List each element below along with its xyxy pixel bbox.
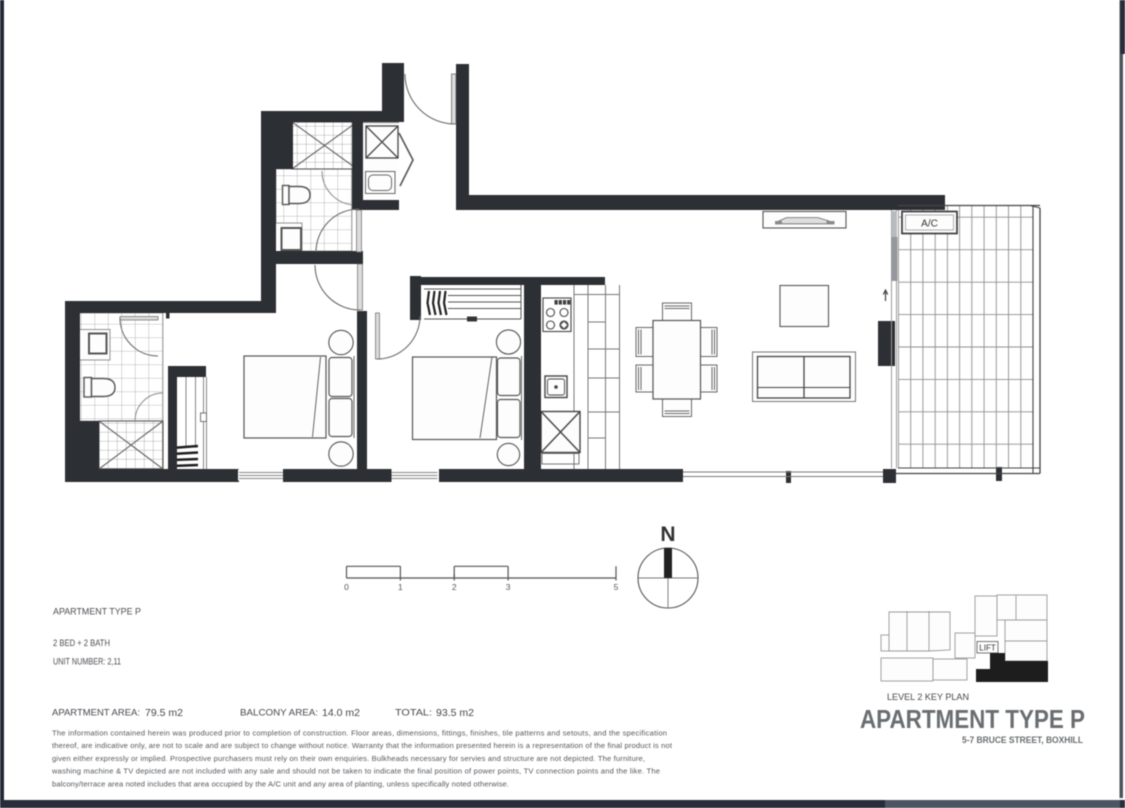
svg-text:5-7 BRUCE STREET, BOXHILL: 5-7 BRUCE STREET, BOXHILL: [962, 735, 1083, 746]
svg-text:APARTMENT TYPE P: APARTMENT TYPE P: [860, 706, 1085, 734]
svg-text:2: 2: [452, 582, 457, 592]
svg-text:A/C: A/C: [921, 219, 938, 230]
svg-text:0: 0: [344, 582, 349, 592]
svg-text:UNIT NUMBER: 2,11: UNIT NUMBER: 2,11: [53, 657, 121, 668]
svg-text:washing machine & TV depicted: washing machine & TV depicted are not in…: [51, 767, 660, 776]
svg-text:The information contained here: The information contained herein was pro…: [52, 729, 667, 738]
svg-text:79.5 m2: 79.5 m2: [145, 707, 183, 719]
svg-text:5: 5: [614, 582, 619, 592]
svg-text:TOTAL:: TOTAL:: [395, 708, 432, 719]
svg-text:balcony/terrace area noted inc: balcony/terrace area noted includes that…: [52, 779, 509, 788]
svg-text:APARTMENT AREA:: APARTMENT AREA:: [52, 708, 140, 719]
svg-text:thereof, are indicative only,: thereof, are indicative only, are not to…: [52, 741, 673, 750]
svg-text:BALCONY AREA:: BALCONY AREA:: [240, 708, 318, 719]
svg-text:3: 3: [506, 582, 511, 592]
svg-text:1: 1: [398, 582, 403, 592]
svg-text:APARTMENT TYPE P: APARTMENT TYPE P: [53, 607, 141, 618]
svg-text:LEVEL 2 KEY PLAN: LEVEL 2 KEY PLAN: [887, 692, 969, 703]
svg-text:N: N: [660, 523, 675, 546]
svg-text:14.0 m2: 14.0 m2: [322, 707, 360, 719]
svg-text:LIFT: LIFT: [979, 644, 996, 653]
svg-text:93.5 m2: 93.5 m2: [436, 707, 474, 719]
svg-text:2 BED + 2 BATH: 2 BED + 2 BATH: [53, 638, 110, 649]
svg-text:given either expressly or impl: given either expressly or implied. Prosp…: [52, 754, 645, 763]
